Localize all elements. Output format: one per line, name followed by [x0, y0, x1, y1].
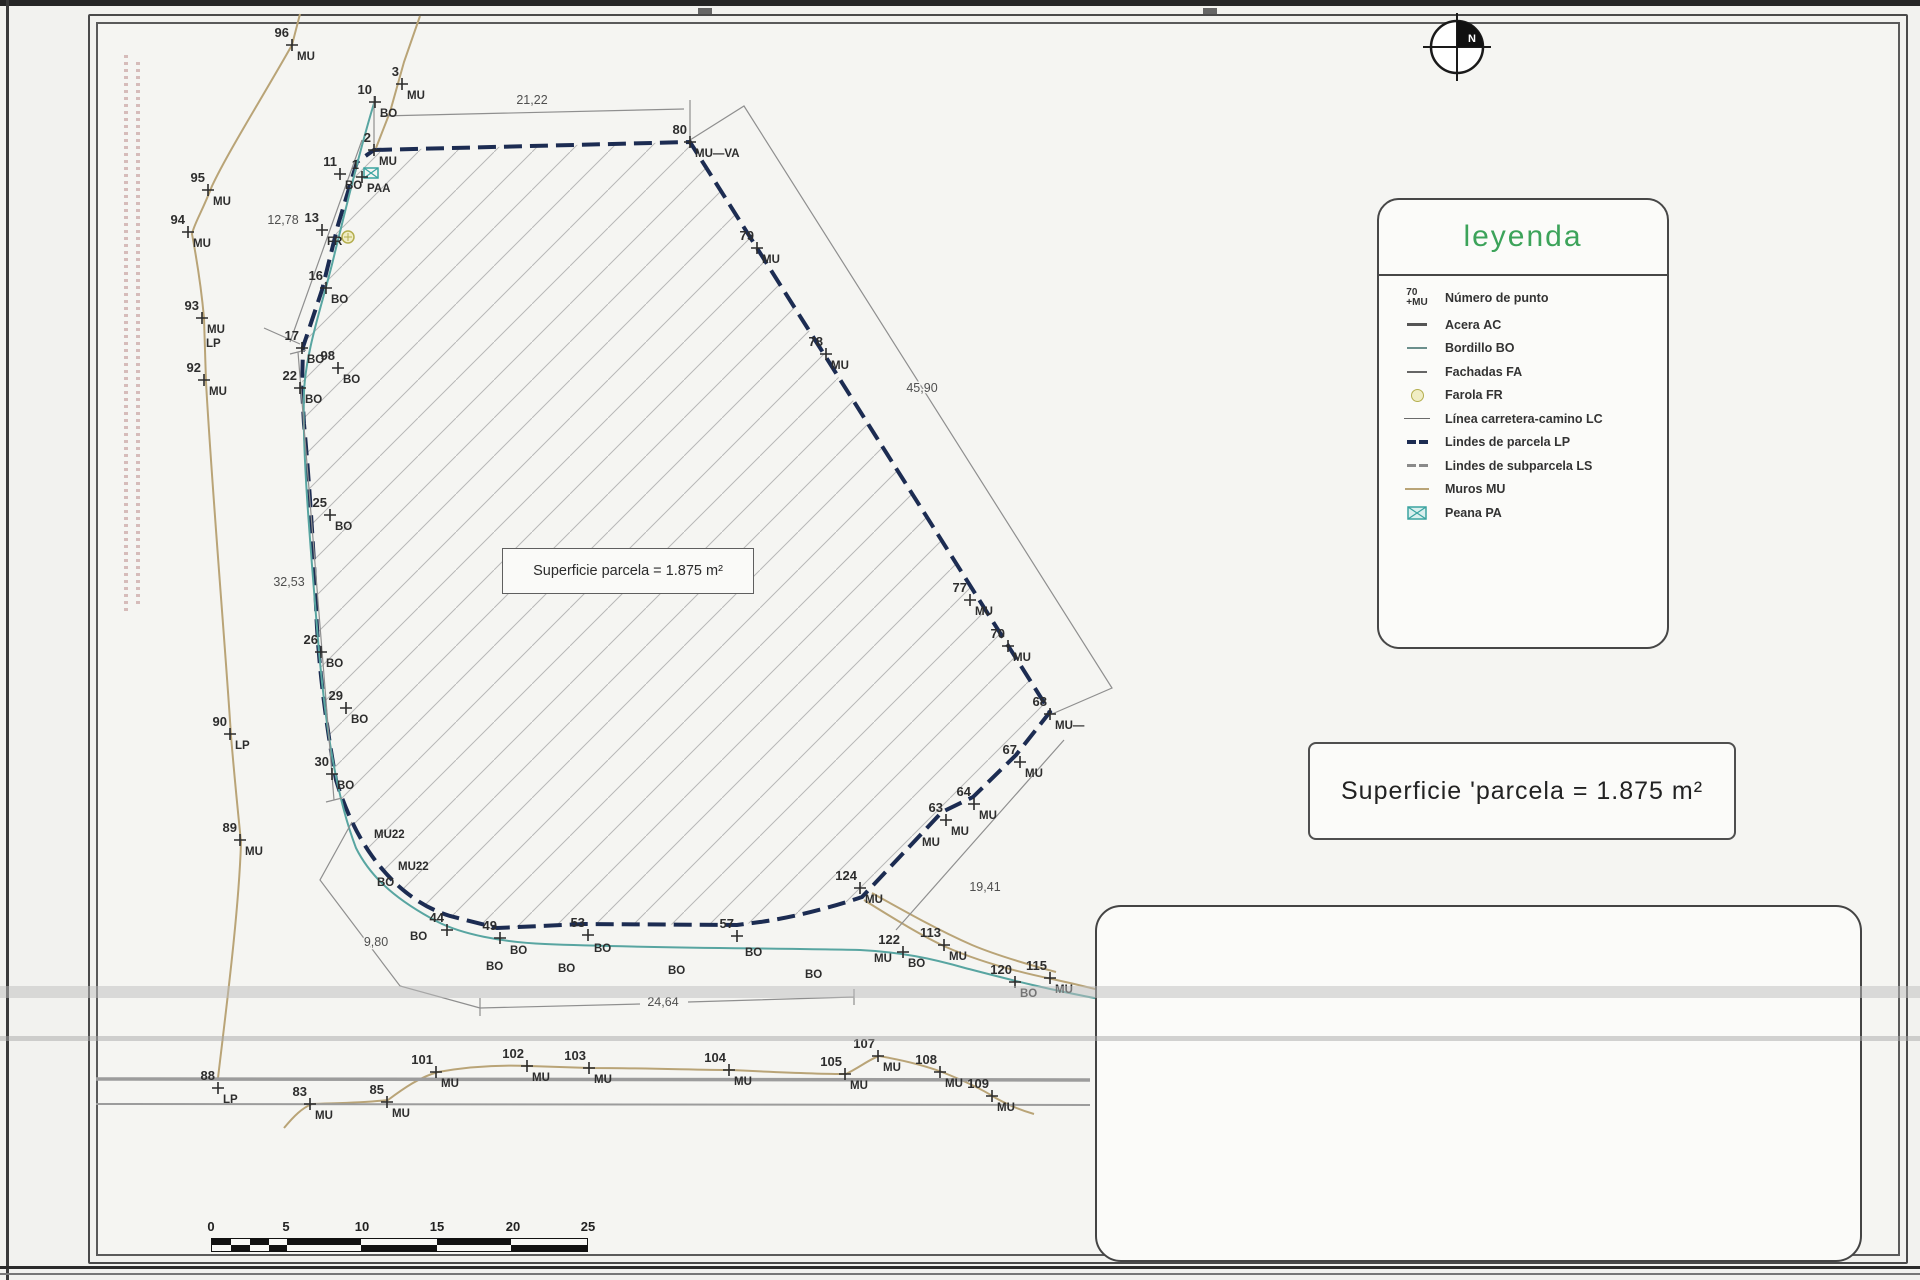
survey-point-89: 89MU [223, 820, 263, 858]
map-label: MU [883, 1062, 901, 1074]
map-label: MU [979, 810, 997, 822]
map-label: MU [392, 1108, 410, 1120]
map-label: BO [305, 394, 322, 406]
map-label: 92 [187, 360, 201, 375]
map-label: 115 [1026, 958, 1047, 973]
map-label: MU [594, 1074, 612, 1086]
map-label: 102 [502, 1046, 524, 1061]
legend-item-label: Farola FR [1445, 388, 1503, 402]
map-label: 88 [201, 1068, 215, 1083]
map-label: MU [315, 1110, 333, 1122]
acera-line-icon [1399, 323, 1435, 326]
map-label: 105 [820, 1054, 842, 1069]
map-label: MU [975, 606, 993, 618]
map-label: MU22 [398, 861, 429, 873]
map-label: MU [213, 196, 231, 208]
carretera-line-icon [1399, 418, 1435, 420]
map-label: BO [343, 374, 360, 386]
map-label: BO [377, 877, 394, 889]
map-label: 96 [275, 25, 289, 40]
legend-item-carretera: Línea carretera-camino LC [1399, 412, 1667, 426]
map-label: 21,22 [516, 93, 547, 107]
legend-item-farola: Farola FR [1399, 388, 1667, 402]
map-label: MU [209, 386, 227, 398]
map-label: MU [297, 51, 315, 63]
map-label: 83 [293, 1084, 307, 1099]
map-label: MU [532, 1072, 550, 1084]
legend-item-label: Muros MU [1445, 482, 1505, 496]
map-label: MU [245, 846, 263, 858]
map-label: 95 [191, 170, 205, 185]
map-label: MU [1025, 768, 1043, 780]
map-label: BO [345, 180, 362, 192]
map-label: 1 [352, 157, 359, 172]
map-label: 104 [704, 1050, 726, 1065]
map-label: 77 [953, 580, 967, 595]
map-label: FR [327, 236, 343, 248]
map-label: 57 [720, 916, 734, 931]
legend-item-fachadas: Fachadas FA [1399, 365, 1667, 379]
map-label: 89 [223, 820, 237, 835]
map-label: 45,90 [906, 381, 937, 395]
map-label: MU [734, 1076, 752, 1088]
map-label: MU [951, 826, 969, 838]
map-label: 63 [929, 800, 943, 815]
map-label: 107 [853, 1036, 875, 1051]
map-label: 93 [185, 298, 199, 313]
bordillo-line-icon [1399, 347, 1435, 349]
legend-item-bordillo: Bordillo BO [1399, 341, 1667, 355]
map-label: 32,53 [273, 575, 304, 589]
point-number-icon: 70+MU [1399, 288, 1435, 308]
map-label: 124 [835, 868, 857, 883]
north-compass-icon: N [1423, 13, 1491, 81]
map-label: 68 [1033, 694, 1047, 709]
map-label: BO [326, 658, 343, 670]
map-label: MU [1055, 984, 1073, 996]
map-label: MU [441, 1078, 459, 1090]
map-label: MU [407, 90, 425, 102]
map-label: BO [668, 965, 685, 977]
survey-point-107: 107MU [853, 1036, 901, 1074]
map-label: 101 [411, 1052, 433, 1067]
map-label: MU [379, 156, 397, 168]
map-label: 78 [809, 334, 823, 349]
map-label: MU [193, 238, 211, 250]
map-label: 9,80 [364, 935, 388, 949]
map-label: BO [510, 945, 527, 957]
map-label: BO [558, 963, 575, 975]
title-block [1095, 905, 1862, 1262]
map-label: MU22 [374, 829, 405, 841]
svg-text:N: N [1468, 33, 1476, 45]
map-label: BO [351, 714, 368, 726]
map-label: MU [949, 951, 967, 963]
legend-item-punto: 70+MU Número de punto [1399, 288, 1667, 308]
map-label: 29 [329, 688, 343, 703]
map-label: 64 [957, 784, 972, 799]
map-label: 10 [358, 82, 372, 97]
map-label: LP [223, 1094, 238, 1106]
legend-title: leyenda [1379, 200, 1667, 276]
peana-icon [1399, 506, 1435, 520]
map-label: BO [337, 780, 354, 792]
survey-point-94: 94MU [171, 212, 211, 250]
area-summary-box: Superficie 'parcela = 1.875 m² [1308, 742, 1736, 840]
map-label: 85 [370, 1082, 384, 1097]
lindes-parcela-icon [1399, 440, 1435, 444]
map-label: 16 [309, 268, 323, 283]
survey-point-101: 101MU [411, 1052, 459, 1090]
legend-item-lindes-subparcela: Lindes de subparcela LS [1399, 459, 1667, 473]
legend-item-label: Bordillo BO [1445, 341, 1514, 355]
legend-item-label: Lindes de parcela LP [1445, 435, 1570, 449]
map-label: MU [874, 953, 892, 965]
legend-item-acera: Acera AC [1399, 318, 1667, 332]
lindes-subparcela-icon [1399, 464, 1435, 467]
map-label: 80 [673, 122, 687, 137]
map-label: MU [762, 254, 780, 266]
survey-point-3: 3MU [392, 64, 425, 102]
map-label: 17 [285, 328, 299, 343]
map-label: 120 [990, 962, 1012, 977]
road-lines [96, 1079, 1090, 1105]
map-label: 113 [920, 925, 941, 940]
map-label: BO [335, 521, 352, 533]
legend-item-label: Acera AC [1445, 318, 1501, 332]
map-label: 90 [213, 714, 227, 729]
map-label: MU [831, 360, 849, 372]
parcel-area-label: Superficie parcela = 1.875 m² [502, 548, 754, 594]
map-label: MU [865, 894, 883, 906]
map-label: BO [331, 294, 348, 306]
map-label: PAA [367, 183, 390, 195]
map-label: MU—VA [695, 148, 740, 160]
map-label: 25 [313, 495, 327, 510]
map-label: LP [206, 338, 221, 350]
map-label: MU [850, 1080, 868, 1092]
map-label: 26 [304, 632, 318, 647]
survey-plan-sheet: N 21,2212,7845,9032,5319,419,8024,64 96M… [0, 0, 1920, 1280]
legend-item-label: Peana PA [1445, 506, 1502, 520]
map-label: 24,64 [647, 995, 678, 1009]
map-label: 19,41 [969, 880, 1000, 894]
map-label: MU— [1055, 720, 1085, 732]
map-label: 67 [1003, 742, 1017, 757]
survey-point-10: 10BO [358, 82, 398, 120]
map-label: 12,78 [267, 213, 298, 227]
map-label: 79 [740, 228, 754, 243]
map-label: MU [207, 324, 225, 336]
map-label: BO [380, 108, 397, 120]
legend-box: leyenda 70+MU Número de punto Acera AC B… [1377, 198, 1669, 649]
farola-icon [342, 231, 354, 243]
legend-item-peana: Peana PA [1399, 506, 1667, 520]
map-label: BO [745, 947, 762, 959]
legend-item-label: Fachadas FA [1445, 365, 1522, 379]
map-label: 98 [321, 348, 335, 363]
map-label: 3 [392, 64, 399, 79]
map-label: 122 [878, 932, 900, 947]
map-label: LP [235, 740, 250, 752]
map-label: 13 [305, 210, 319, 225]
map-label: 11 [323, 154, 337, 169]
map-label: MU [922, 837, 940, 849]
map-label: 49 [483, 918, 497, 933]
map-label: 70 [991, 626, 1005, 641]
map-label: 109 [967, 1076, 989, 1091]
map-label: 94 [171, 212, 186, 227]
map-label: 2 [364, 130, 371, 145]
map-label: BO [908, 958, 925, 970]
map-label: BO [594, 943, 611, 955]
map-label: 22 [283, 368, 297, 383]
muros-line-icon [1399, 488, 1435, 490]
farola-icon [1399, 389, 1435, 402]
legend-item-muros: Muros MU [1399, 482, 1667, 496]
map-label: 108 [915, 1052, 937, 1067]
map-label: MU [945, 1078, 963, 1090]
map-label: MU [997, 1102, 1015, 1114]
legend-item-lindes-parcela: Lindes de parcela LP [1399, 435, 1667, 449]
map-label: 103 [564, 1048, 586, 1063]
legend-item-label: Línea carretera-camino LC [1445, 412, 1603, 426]
map-label: 30 [315, 754, 329, 769]
legend-item-label: Lindes de subparcela LS [1445, 459, 1592, 473]
map-label: BO [1020, 988, 1037, 1000]
map-label: BO [410, 931, 427, 943]
fachadas-line-icon [1399, 371, 1435, 373]
map-label: BO [486, 961, 503, 973]
map-label: BO [805, 969, 822, 981]
map-label: MU [1013, 652, 1031, 664]
legend-item-label: Número de punto [1445, 291, 1548, 305]
map-label: 44 [430, 910, 445, 925]
map-label: 53 [571, 915, 585, 930]
